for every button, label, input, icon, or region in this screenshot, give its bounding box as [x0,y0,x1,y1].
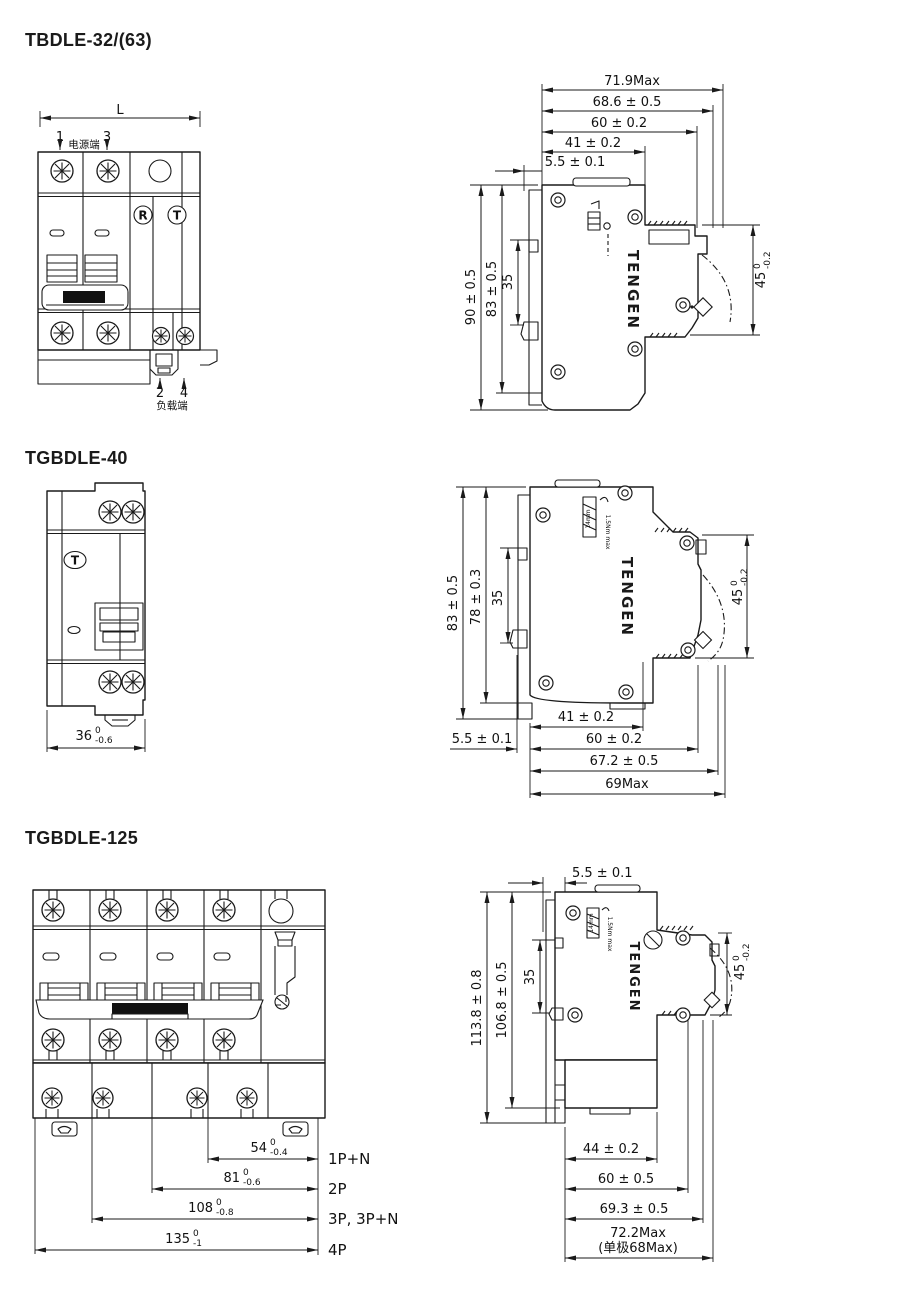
terminal-screw-icon [99,671,121,693]
brand-logo: TENGEN [618,557,636,637]
terminal-hole-icon [269,899,293,923]
top-lip [573,178,630,186]
dim-60: 60 ± 0.2 [542,116,697,132]
dim-35: 35 [501,240,529,325]
svg-text:108: 108 [188,1201,213,1216]
case-screw-icon [676,931,690,945]
svg-text:-0.2: -0.2 [763,251,773,269]
section-title-tgbdle-125: TGBDLE-125 [25,828,138,849]
svg-text:-0.2: -0.2 [740,568,750,586]
svg-text:83 ± 0.5: 83 ± 0.5 [446,575,461,631]
top-lip [555,480,600,487]
terminal-screw-icon [153,328,170,345]
terminal-1: 1 [56,130,64,145]
breaker-side-body: 14mm 1.5Nm max TENGEN [546,885,732,1123]
case-screw-icon [676,1008,690,1022]
terminal-screw-icon [99,501,121,523]
terminal-screw-icon [122,501,144,523]
strip-width-label: 14mm [588,913,595,932]
svg-text:36: 36 [75,729,92,744]
tgbdle-40-front-view: T 36 0 -0.6 [40,480,170,765]
dim-135-4p: 135 0 -1 4P [35,1229,347,1259]
svg-text:60 ± 0.2: 60 ± 0.2 [586,732,642,747]
section-title-tgbdle-40: TGBDLE-40 [25,448,128,469]
dim-71-9max: 71.9Max [542,74,723,90]
svg-text:5.5 ± 0.1: 5.5 ± 0.1 [572,866,633,881]
svg-text:35: 35 [491,590,506,607]
svg-text:41 ± 0.2: 41 ± 0.2 [558,710,614,725]
case-screw-icon [619,685,633,699]
terminal-screw-icon [51,322,73,344]
svg-text:135: 135 [165,1232,190,1247]
svg-text:5.5 ± 0.1: 5.5 ± 0.1 [545,155,606,170]
power-side-label: 电源端 [68,138,100,151]
lower-terminal-section [33,1063,325,1118]
svg-text:45: 45 [754,272,769,289]
dim-54-1pn: 54 0 -0.4 1P+N [208,1138,370,1168]
svg-text:-0.4: -0.4 [270,1148,288,1158]
torque-note: 1.5Nm max [606,917,613,952]
svg-text:0: 0 [243,1168,249,1178]
toggle-handle [42,285,128,310]
strip-width-label: 14mm [585,509,592,528]
svg-text:67.2 ± 0.5: 67.2 ± 0.5 [590,754,659,769]
svg-text:0: 0 [730,580,740,586]
dim-36: 36 0 -0.6 [47,710,145,752]
svg-text:83 ± 0.5: 83 ± 0.5 [485,261,500,317]
dim-106-8: 106.8 ± 0.5 [495,892,560,1108]
bottom-lip [610,703,645,709]
case-screw-icon [566,906,580,920]
terminal-screw-icon [122,671,144,693]
breaker-body: R T [38,152,200,350]
case-screw-icon [618,486,632,500]
case-screw-icon [628,210,642,224]
tgbdle-125-side-view: 5.5 ± 0.1 [460,860,790,1270]
brand-logo: TENGEN [624,250,642,330]
breaker-side-body: 14mm 1.5Nm max TENGEN [510,480,724,719]
dim-5-5: 5.5 ± 0.1 [495,155,605,171]
tgbdle-40-side-view: 14mm 1.5Nm max TENGEN 83 ± 0.5 78 ± 0.3 … [440,470,780,805]
svg-text:90 ± 0.5: 90 ± 0.5 [464,269,479,325]
svg-text:81: 81 [223,1171,240,1186]
dim-108-3p: 108 0 -0.8 3P, 3P+N [92,1198,399,1228]
svg-text:60 ± 0.2: 60 ± 0.2 [591,116,647,131]
pole-label-3p: 3P, 3P+N [328,1210,399,1228]
svg-text:R: R [138,209,147,223]
case-screw-icon [536,508,550,522]
case-screw-icon [539,676,553,690]
pole-label-4p: 4P [328,1241,347,1259]
terminal-screw-icon [97,322,119,344]
svg-text:0: 0 [95,726,101,736]
svg-text:44 ± 0.2: 44 ± 0.2 [583,1142,639,1157]
knurl-marks [660,926,693,930]
svg-text:T: T [71,554,80,568]
test-button: T [64,552,86,569]
dim-44: 44 ± 0.2 [565,1112,657,1163]
breaker-body: T [47,483,145,726]
test-button: T [168,206,186,224]
single-pole-note: (单极68Max) [598,1241,678,1256]
knob-screw-icon [644,931,662,949]
tgbdle-125-front-view: 54 0 -0.4 1P+N 81 0 -0.6 2P 108 0 -0.8 3… [25,865,455,1265]
pole-label-2p: 2P [328,1180,347,1198]
terminal-screw-icon [97,160,119,182]
terminal-screw-icon [177,328,194,345]
svg-text:0: 0 [193,1229,199,1239]
top-terminal-callouts: 1 3 电源端 [56,130,111,151]
terminal-hole-icon [149,160,171,182]
tbdle-32-front-view: L 1 3 电源端 [28,103,228,413]
svg-text:-0.6: -0.6 [243,1178,261,1188]
dim-68-6: 68.6 ± 0.5 [542,95,713,111]
breaker-side-body: TENGEN [521,178,731,410]
svg-text:69.3 ± 0.5: 69.3 ± 0.5 [600,1202,669,1217]
case-screw-icon [680,536,694,550]
torque-note: 1.5Nm max [604,515,611,550]
terminal-3: 3 [103,130,111,145]
din-rail-flange [521,190,542,405]
load-side-label: 负载端 [156,399,188,412]
din-clip [283,1122,308,1136]
svg-text:45: 45 [733,964,748,981]
dim-35: 35 [491,548,518,643]
dim-L: L [40,103,200,127]
svg-text:113.8 ± 0.8: 113.8 ± 0.8 [470,969,485,1046]
svg-text:-0.8: -0.8 [216,1208,234,1218]
bottom-terminal-shields [38,350,217,384]
svg-text:68.6 ± 0.5: 68.6 ± 0.5 [593,95,662,110]
case-screw-icon [551,193,565,207]
dim-81-2p: 81 0 -0.6 2P [152,1168,347,1198]
svg-text:0: 0 [732,955,742,961]
svg-text:-0.6: -0.6 [95,736,113,746]
svg-text:69Max: 69Max [605,777,649,792]
dimension-drawing-sheet: TBDLE-32/(63) L 1 3 电源端 [0,0,900,1305]
brand-logo: TENGEN [626,941,641,1012]
top-lip [595,885,640,892]
pivot-dot [690,305,693,308]
svg-text:35: 35 [501,274,516,291]
svg-text:0: 0 [270,1138,276,1148]
din-rail-flange [510,495,532,719]
svg-text:54: 54 [250,1141,267,1156]
svg-text:-1: -1 [193,1239,202,1249]
svg-text:0: 0 [216,1198,222,1208]
case-screw-icon [568,1008,582,1022]
svg-text:35: 35 [523,969,538,986]
terminal-screw-icon [51,160,73,182]
svg-text:T: T [173,209,182,223]
case-screw-icon [551,365,565,379]
bottom-lip [590,1108,630,1114]
svg-text:60 ± 0.5: 60 ± 0.5 [598,1172,654,1187]
dim-41: 41 ± 0.2 [542,136,645,152]
svg-text:5.5 ± 0.1: 5.5 ± 0.1 [452,732,513,747]
handle-travel-arc [703,575,724,661]
toggle-handle-bar [36,1000,263,1019]
bottom-terminal-callouts: 2 4 负载端 [156,378,188,412]
breaker-body [33,890,325,1136]
tbdle-32-side-view: 71.9Max 68.6 ± 0.5 60 ± 0.2 41 ± 0.2 5.5… [450,60,900,440]
svg-text:-0.2: -0.2 [742,943,752,961]
case-screw-icon [676,298,690,312]
svg-text:71.9Max: 71.9Max [604,74,660,89]
svg-text:72.2Max: 72.2Max [610,1226,666,1241]
svg-text:41 ± 0.2: 41 ± 0.2 [565,136,621,151]
svg-text:45: 45 [731,589,746,606]
pole-label-1pn: 1P+N [328,1150,370,1168]
dim-5-5: 5.5 ± 0.1 [450,655,517,753]
svg-text:106.8 ± 0.5: 106.8 ± 0.5 [495,961,510,1038]
case-screw-icon [628,342,642,356]
dim-90: 90 ± 0.5 [464,185,548,410]
dim-l-text: L [116,103,124,118]
terminal-2: 2 [156,386,164,401]
din-clip [52,1122,77,1136]
svg-text:0: 0 [753,263,763,269]
terminal-4: 4 [180,386,188,401]
case-screw-icon [681,643,695,657]
dim-35: 35 [523,940,555,1013]
svg-text:78 ± 0.3: 78 ± 0.3 [469,569,484,625]
reset-button: R [134,206,152,224]
section-title-tbdle-32: TBDLE-32/(63) [25,30,152,51]
